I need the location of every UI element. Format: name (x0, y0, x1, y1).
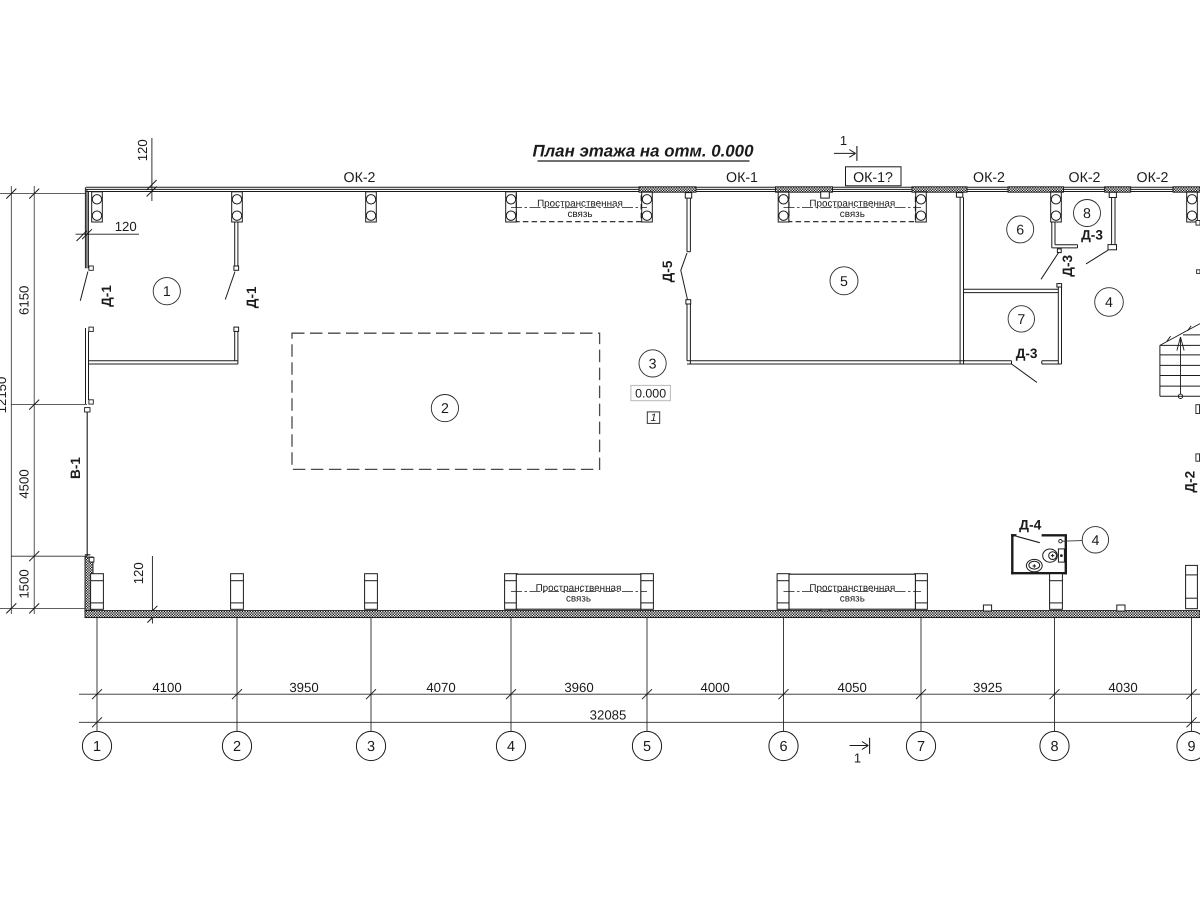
svg-text:Д-3: Д-3 (1081, 228, 1103, 243)
svg-text:2: 2 (233, 739, 241, 755)
svg-text:Д-1: Д-1 (244, 286, 259, 308)
svg-text:Д-4: Д-4 (1019, 517, 1041, 532)
svg-text:120: 120 (131, 562, 146, 584)
svg-text:7: 7 (917, 739, 925, 755)
svg-text:4050: 4050 (838, 680, 867, 695)
svg-text:Пространственная: Пространственная (809, 199, 895, 210)
svg-text:1: 1 (163, 284, 171, 300)
svg-text:4100: 4100 (152, 680, 181, 695)
svg-text:4: 4 (1091, 533, 1099, 549)
svg-text:8: 8 (1050, 739, 1058, 755)
svg-text:0.000: 0.000 (635, 386, 666, 400)
svg-text:ОК-2: ОК-2 (344, 170, 376, 186)
svg-text:6: 6 (779, 739, 787, 755)
svg-text:План этажа на отм. 0.000: План этажа на отм. 0.000 (533, 142, 755, 161)
svg-text:120: 120 (135, 139, 150, 161)
svg-text:9: 9 (1187, 739, 1195, 755)
svg-text:1: 1 (93, 739, 101, 755)
svg-text:ОК-1: ОК-1 (726, 170, 758, 186)
svg-text:В-1: В-1 (68, 457, 83, 479)
svg-text:Д-2: Д-2 (1182, 470, 1197, 492)
svg-text:ОК-2: ОК-2 (1069, 170, 1101, 186)
svg-text:Д-3: Д-3 (1016, 346, 1038, 361)
svg-text:4500: 4500 (17, 469, 32, 498)
svg-text:связь: связь (566, 594, 591, 605)
svg-text:1500: 1500 (17, 569, 32, 598)
svg-text:4030: 4030 (1108, 680, 1137, 695)
svg-text:ОК-2: ОК-2 (973, 170, 1005, 186)
svg-text:6: 6 (1016, 222, 1024, 238)
svg-text:3950: 3950 (289, 680, 318, 695)
svg-text:6150: 6150 (17, 286, 32, 315)
svg-text:связь: связь (840, 594, 865, 605)
svg-text:2: 2 (441, 401, 449, 417)
svg-text:1: 1 (854, 751, 861, 766)
svg-text:Д-5: Д-5 (660, 260, 675, 282)
svg-text:7: 7 (1017, 312, 1025, 328)
svg-text:4: 4 (507, 739, 515, 755)
svg-text:32085: 32085 (590, 708, 627, 723)
svg-text:1: 1 (650, 412, 656, 424)
svg-text:5: 5 (643, 739, 651, 755)
svg-text:3960: 3960 (564, 680, 593, 695)
svg-text:связь: связь (840, 209, 865, 220)
svg-text:5: 5 (840, 274, 848, 290)
svg-text:12150: 12150 (0, 377, 9, 414)
svg-text:Д-1: Д-1 (99, 285, 114, 307)
svg-text:3925: 3925 (973, 680, 1002, 695)
svg-text:4070: 4070 (426, 680, 455, 695)
svg-text:3: 3 (649, 356, 657, 372)
svg-text:3: 3 (367, 739, 375, 755)
svg-text:Пространственная: Пространственная (537, 199, 623, 210)
svg-text:120: 120 (115, 219, 137, 234)
svg-text:связь: связь (567, 209, 592, 220)
svg-text:4: 4 (1105, 295, 1113, 311)
svg-text:8: 8 (1083, 206, 1091, 222)
svg-text:4000: 4000 (701, 680, 730, 695)
svg-text:ОК-1?: ОК-1? (853, 170, 893, 186)
svg-text:Д-3: Д-3 (1060, 254, 1075, 276)
svg-text:ОК-2: ОК-2 (1137, 170, 1169, 186)
svg-text:1: 1 (840, 133, 847, 148)
